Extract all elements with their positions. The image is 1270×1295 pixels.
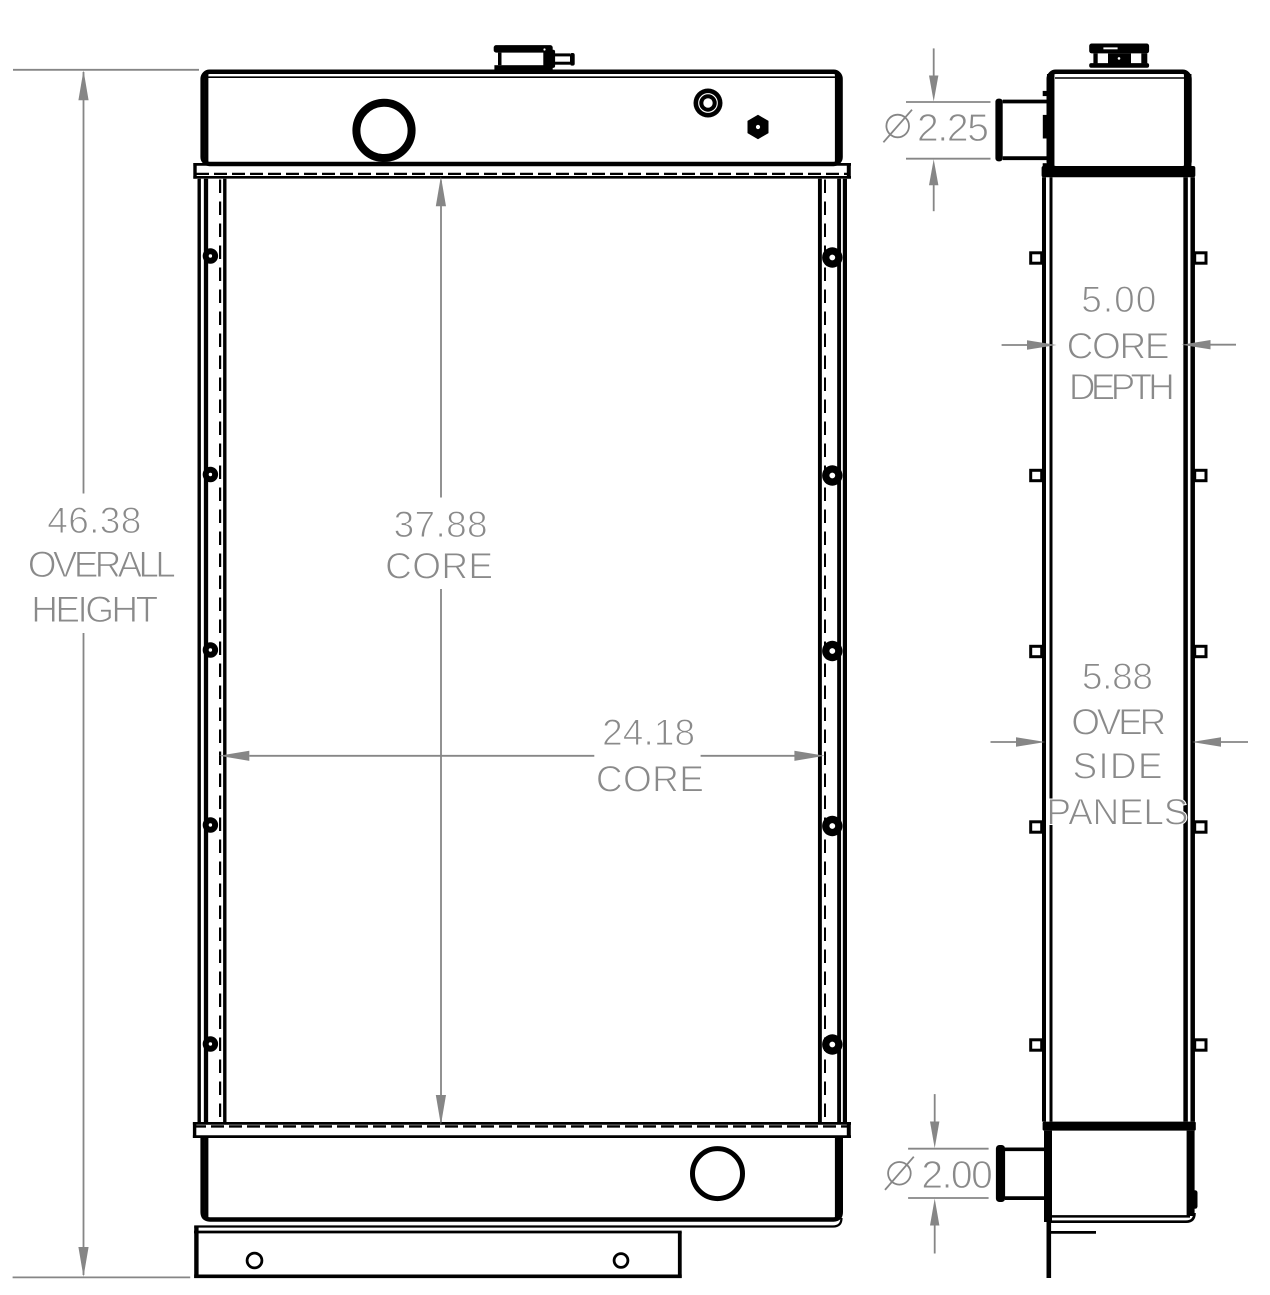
svg-text:5.00: 5.00 (1081, 279, 1156, 320)
svg-text:OVER: OVER (1071, 702, 1166, 743)
svg-text:5.88: 5.88 (1082, 656, 1153, 697)
svg-text:CORE: CORE (596, 759, 704, 800)
svg-text:SIDE: SIDE (1073, 746, 1163, 787)
svg-text:CORE: CORE (385, 546, 493, 587)
svg-text:24.18: 24.18 (602, 712, 695, 753)
svg-text:37.88: 37.88 (394, 504, 488, 545)
svg-text:OVERALL: OVERALL (28, 544, 176, 585)
svg-text:CORE: CORE (1067, 325, 1170, 366)
svg-text:46.38: 46.38 (47, 500, 141, 541)
svg-text:HEIGHT: HEIGHT (31, 589, 158, 630)
svg-text:PANELS: PANELS (1046, 791, 1188, 832)
svg-text:2.25: 2.25 (917, 107, 989, 150)
svg-text:DEPTH: DEPTH (1069, 366, 1175, 407)
svg-text:2.00: 2.00 (921, 1154, 993, 1197)
